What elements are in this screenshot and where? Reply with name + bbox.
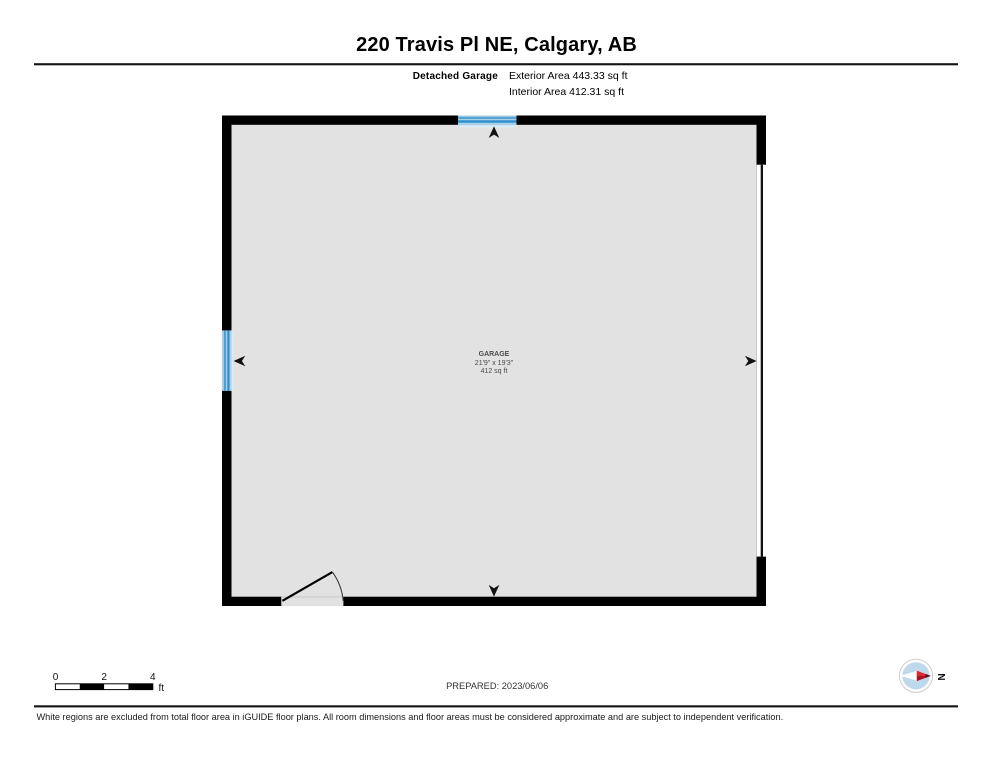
svg-text:412 sq ft: 412 sq ft [481, 368, 508, 375]
svg-text:White regions are excluded fro: White regions are excluded from total fl… [37, 712, 784, 722]
svg-text:4: 4 [150, 672, 156, 683]
svg-text:Detached Garage: Detached Garage [413, 71, 498, 82]
svg-text:21'9" x 19'3": 21'9" x 19'3" [475, 360, 514, 367]
svg-text:PREPARED: 2023/06/06: PREPARED: 2023/06/06 [446, 681, 548, 691]
svg-text:GARAGE: GARAGE [479, 351, 510, 358]
svg-text:N: N [935, 673, 946, 680]
svg-text:ft: ft [159, 683, 165, 694]
svg-text:Exterior Area 443.33 sq ft: Exterior Area 443.33 sq ft [509, 70, 628, 82]
svg-text:0: 0 [53, 672, 59, 683]
svg-text:Interior Area 412.31 sq ft: Interior Area 412.31 sq ft [509, 86, 624, 98]
svg-text:220 Travis Pl NE, Calgary, AB: 220 Travis Pl NE, Calgary, AB [356, 34, 637, 56]
svg-text:2: 2 [101, 672, 107, 683]
